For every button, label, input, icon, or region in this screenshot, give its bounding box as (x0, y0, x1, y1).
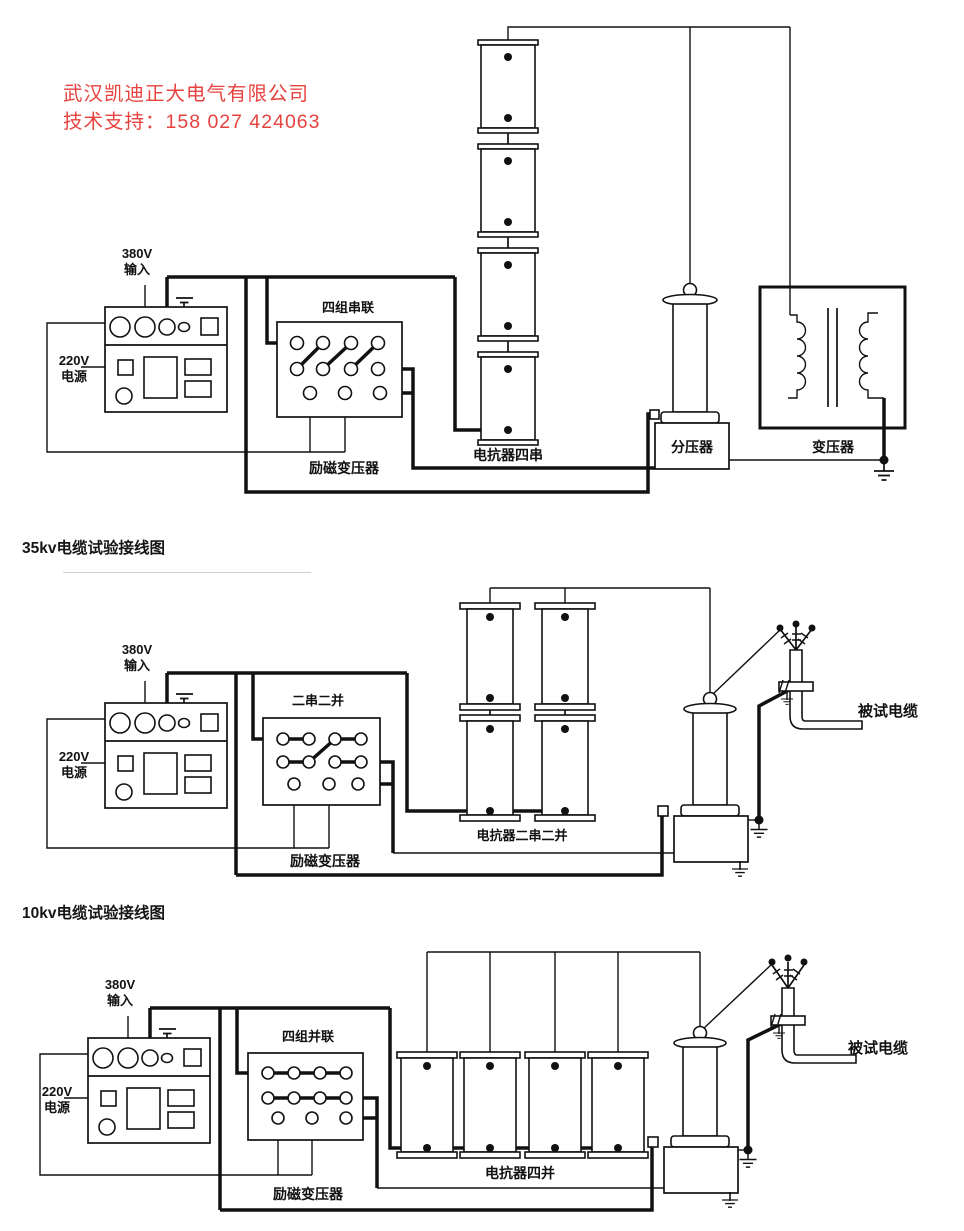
d2-test-cable: 被试电缆 (777, 621, 919, 730)
d1-reactor-label: 电抗器四串 (473, 447, 543, 463)
d1-label-power: 电源 (61, 369, 87, 384)
d3-label-power: 电源 (44, 1100, 70, 1115)
d2-label-220v: 220V (59, 749, 90, 764)
d2-cable-clamp (779, 682, 813, 691)
d3-switch-title: 四组并联 (282, 1029, 334, 1044)
d3-cable-clamp (771, 1016, 805, 1025)
wiring-diagrams: 380V 输入 220V 电源 四组串联 励磁变压器 (0, 0, 964, 1231)
d3-reactor-units (397, 1052, 648, 1158)
d1-label-220v: 220V (59, 353, 90, 368)
d3-control-panel: 380V 输入 220V 电源 (42, 977, 210, 1143)
d3-label-220v: 220V (42, 1084, 73, 1099)
d1-core (828, 308, 837, 407)
d3-test-cable: 被试电缆 (769, 955, 909, 1064)
d2-switch-title: 二串二并 (292, 693, 344, 708)
d3-reactor-bank: 电抗器四并 (397, 1052, 648, 1181)
d2-switch-box: 二串二并 励磁变压器 (263, 693, 380, 869)
d3-reactor-label: 电抗器四并 (485, 1165, 555, 1181)
d3-label-380v: 380V (105, 977, 136, 992)
diagram-2: 380V 输入 220V 电源 二串二并 励磁变压器 (47, 588, 918, 876)
d2-label-380v: 380V (122, 642, 153, 657)
d2-base-ground (732, 861, 748, 876)
d3-hv-lead (703, 964, 772, 1029)
d2-label-input: 输入 (124, 658, 150, 673)
d1-transformer-label: 变压器 (812, 439, 855, 455)
page: 武汉凯迪正大电气有限公司技术支持：158 027 424063 35kv电缆试验… (0, 0, 964, 1231)
d3-base-ground (722, 1192, 738, 1207)
d2-voltage-divider (658, 693, 748, 863)
d1-label-input: 输入 (124, 262, 150, 277)
d1-divider-label: 分压器 (671, 439, 714, 455)
d1-right-coil (860, 313, 885, 398)
d1-ground-icon (874, 461, 894, 480)
d1-left-coil (788, 315, 806, 398)
d3-ground-icon (740, 1151, 757, 1167)
d3-excitation-label: 励磁变压器 (273, 1186, 344, 1202)
d3-cable-label: 被试电缆 (848, 1039, 908, 1057)
d1-switch-title: 四组串联 (322, 300, 374, 315)
diagram-3: 380V 输入 220V 电源 四组并联 励磁变压器 (40, 952, 908, 1210)
d1-reactor-stack: 电抗器四串 (473, 40, 543, 463)
d1-label-380v: 380V (122, 246, 153, 261)
d2-reactor-bank: 电抗器二串二并 (460, 603, 595, 843)
d2-reactor-units (460, 603, 595, 821)
d2-excitation-label: 励磁变压器 (290, 853, 361, 869)
d1-wires (47, 27, 884, 492)
d2-hv-lead (712, 630, 780, 695)
d2-cable-label: 被试电缆 (858, 702, 918, 720)
d2-label-power: 电源 (61, 765, 87, 780)
d2-control-panel: 380V 输入 220V 电源 (59, 642, 227, 808)
d2-ground-icon (751, 821, 768, 837)
d1-voltage-divider: 分压器 (650, 284, 729, 470)
diagram-1: 380V 输入 220V 电源 四组串联 励磁变压器 (47, 27, 905, 492)
d3-switch-box: 四组并联 励磁变压器 (248, 1029, 363, 1202)
d1-excitation-label: 励磁变压器 (309, 460, 380, 476)
d2-reactor-label: 电抗器二串二并 (476, 828, 567, 843)
d1-control-panel: 380V 输入 220V 电源 (59, 246, 227, 412)
d1-switch-box: 四组串联 励磁变压器 (277, 300, 402, 476)
d3-label-input: 输入 (107, 993, 133, 1008)
d3-voltage-divider (648, 1027, 738, 1194)
